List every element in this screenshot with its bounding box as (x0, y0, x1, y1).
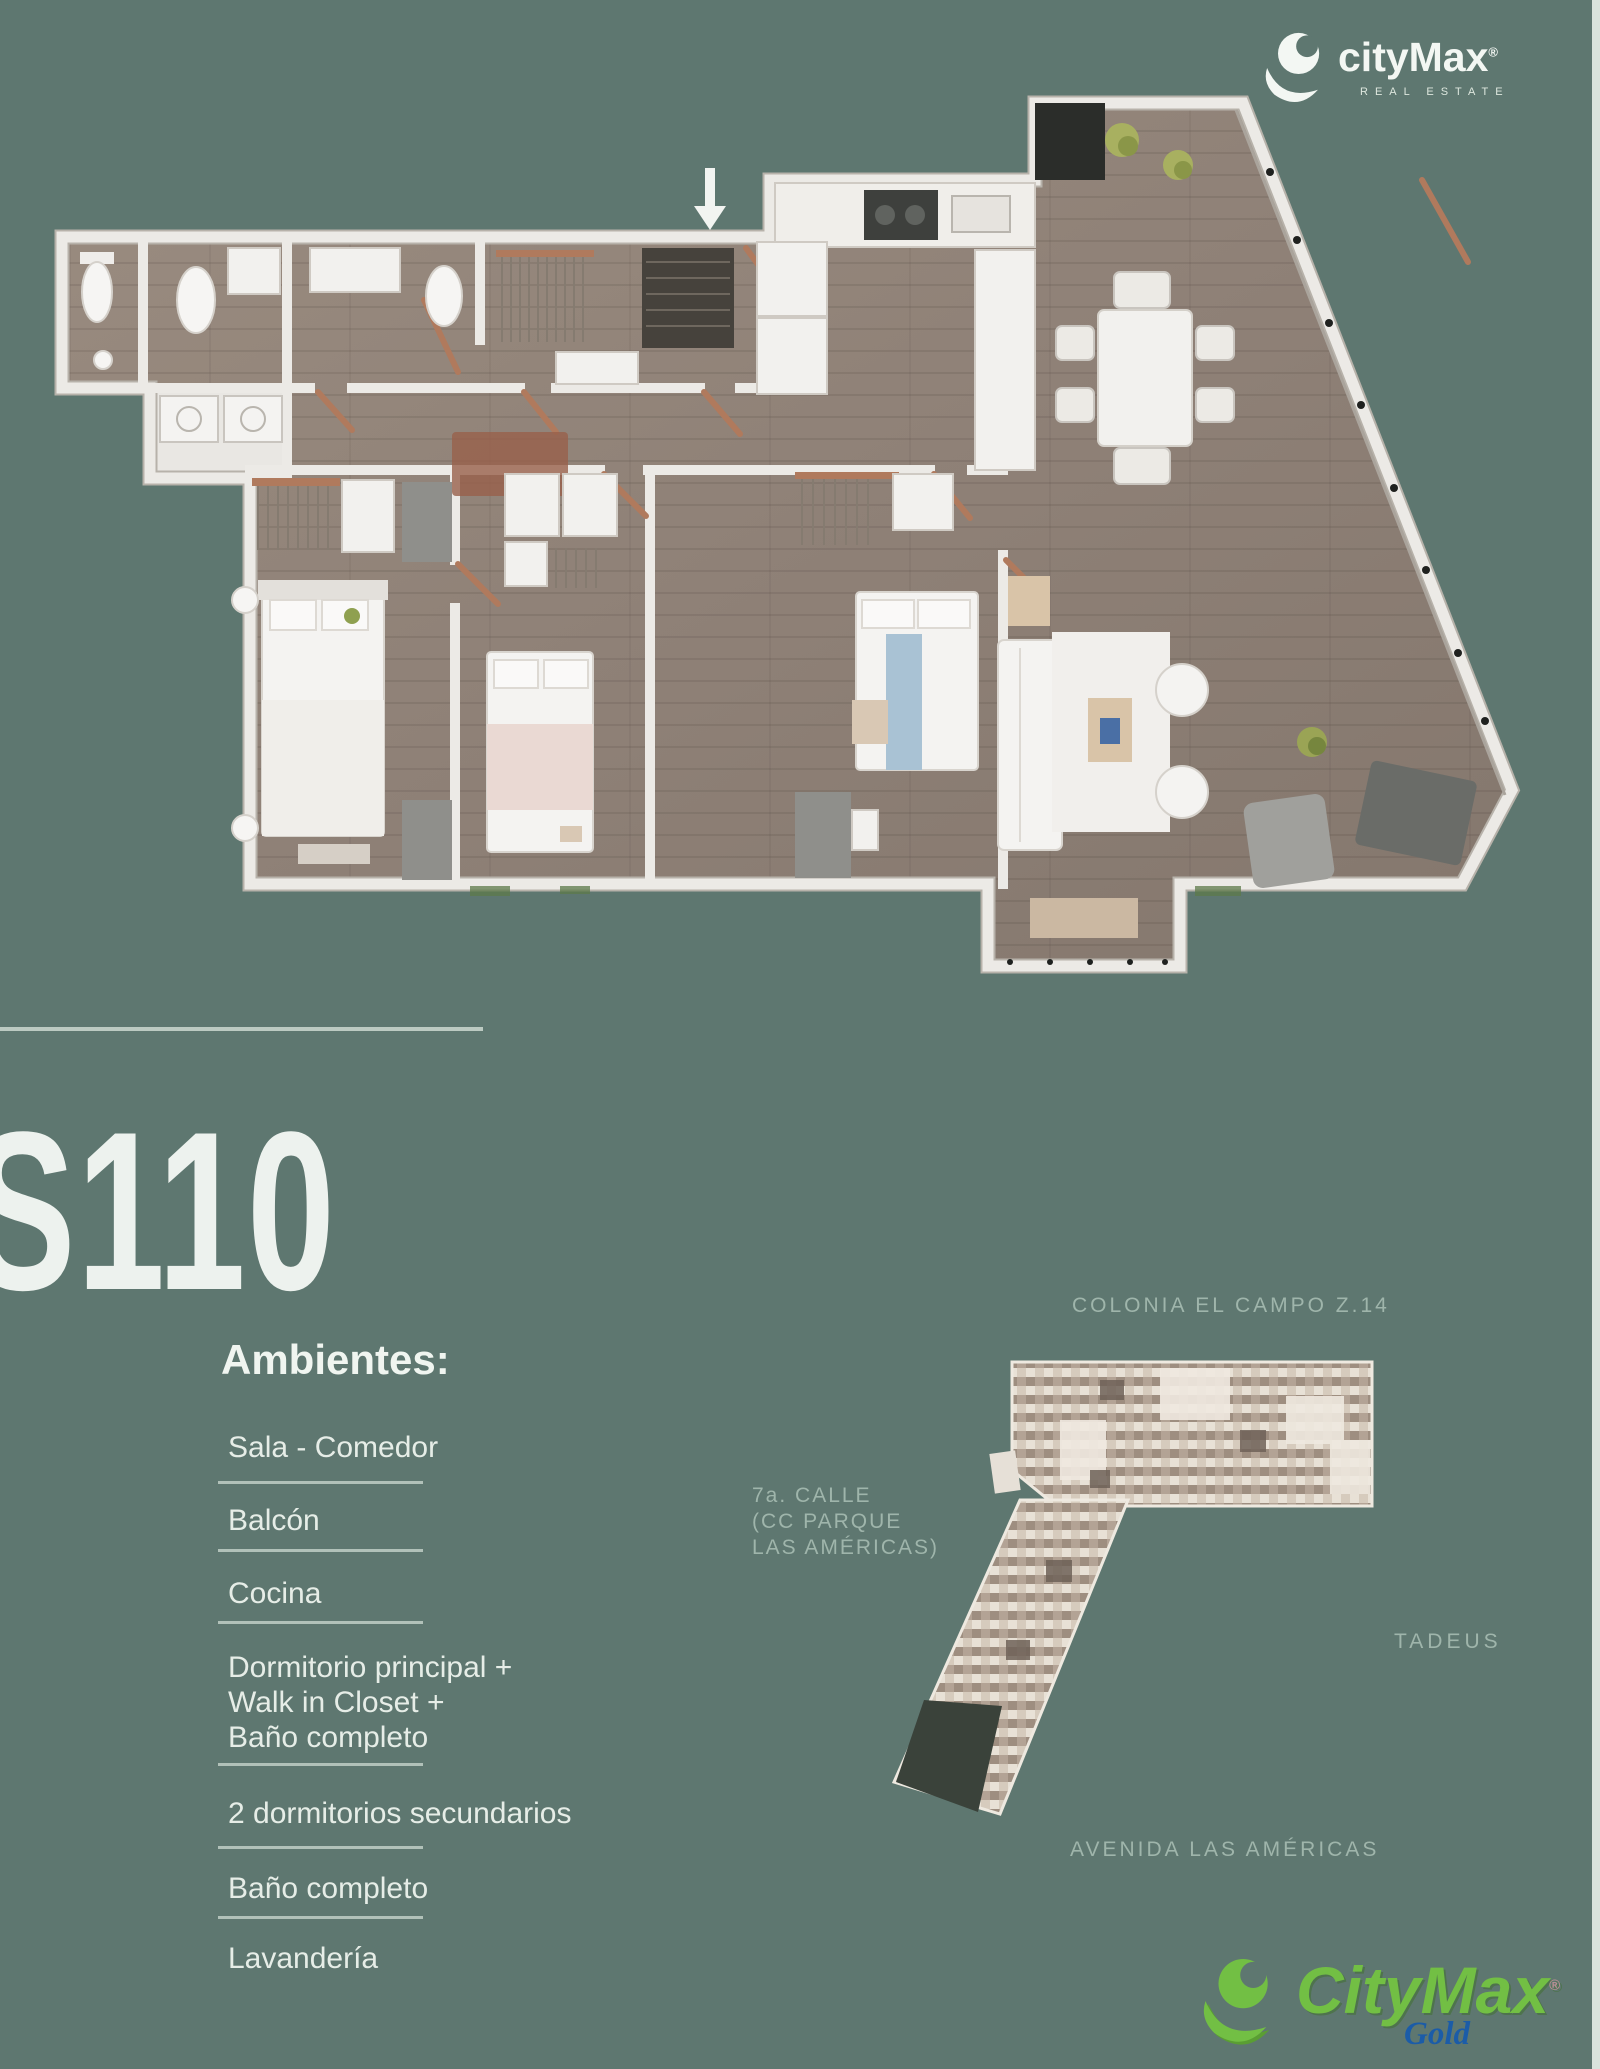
ambientes-heading: Ambientes: (221, 1336, 450, 1384)
map-label-colonia: COLONIA EL CAMPO Z.14 (1072, 1294, 1390, 1318)
ambiente-item: Sala - Comedor (228, 1430, 438, 1465)
kitchen-sink (952, 196, 1010, 232)
ambiente-item: Balcón (228, 1503, 320, 1538)
ambiente-item: Cocina (228, 1576, 321, 1611)
brochure-page: cityMax® REAL ESTATE S110 Ambientes: Sal… (0, 0, 1600, 2069)
ambiente-item: Dormitorio principal + Walk in Closet + … (228, 1650, 512, 1755)
site-map-graphic (840, 1330, 1460, 1850)
registered-mark: ® (1549, 1977, 1560, 1994)
citymax-gold-logo: CityMax® Gold (1196, 1946, 1600, 2066)
citymax-tagline: REAL ESTATE (1360, 86, 1510, 98)
page-edge-strip (1592, 0, 1600, 2069)
section-divider (0, 1027, 483, 1031)
ambiente-item: Lavandería (228, 1941, 378, 1976)
ambiente-item: 2 dormitorios secundarios (228, 1796, 572, 1831)
citymax-gold-swoosh-icon (1196, 1946, 1296, 2056)
list-divider (218, 1763, 423, 1766)
list-divider (218, 1916, 423, 1919)
list-divider (218, 1549, 423, 1552)
registered-mark: ® (1488, 44, 1498, 59)
planter-box (1035, 103, 1105, 180)
side-table (1008, 576, 1050, 626)
map-label-tadeus: TADEUS (1394, 1630, 1502, 1654)
building-footprint (894, 1362, 1372, 1814)
citymax-wordmark: cityMax® (1338, 34, 1498, 81)
ambiente-item: Baño completo (228, 1871, 428, 1906)
entrance-arrow-icon (694, 168, 726, 230)
list-divider (218, 1481, 423, 1484)
unit-code: S110 (0, 1098, 336, 1324)
list-divider (218, 1846, 423, 1849)
map-label-avenida: AVENIDA LAS AMÉRICAS (1070, 1838, 1379, 1862)
gold-label: Gold (1404, 2016, 1470, 2053)
citymax-swoosh-icon (1262, 22, 1340, 114)
bench (1030, 898, 1138, 938)
map-label-calle: 7a. CALLE (CC PARQUE LAS AMÉRICAS) (752, 1483, 939, 1561)
list-divider (218, 1621, 423, 1624)
floor-plan-graphic (0, 0, 1600, 1040)
armchair (1242, 793, 1335, 890)
citymax-logo-top: cityMax® REAL ESTATE (1262, 20, 1582, 115)
